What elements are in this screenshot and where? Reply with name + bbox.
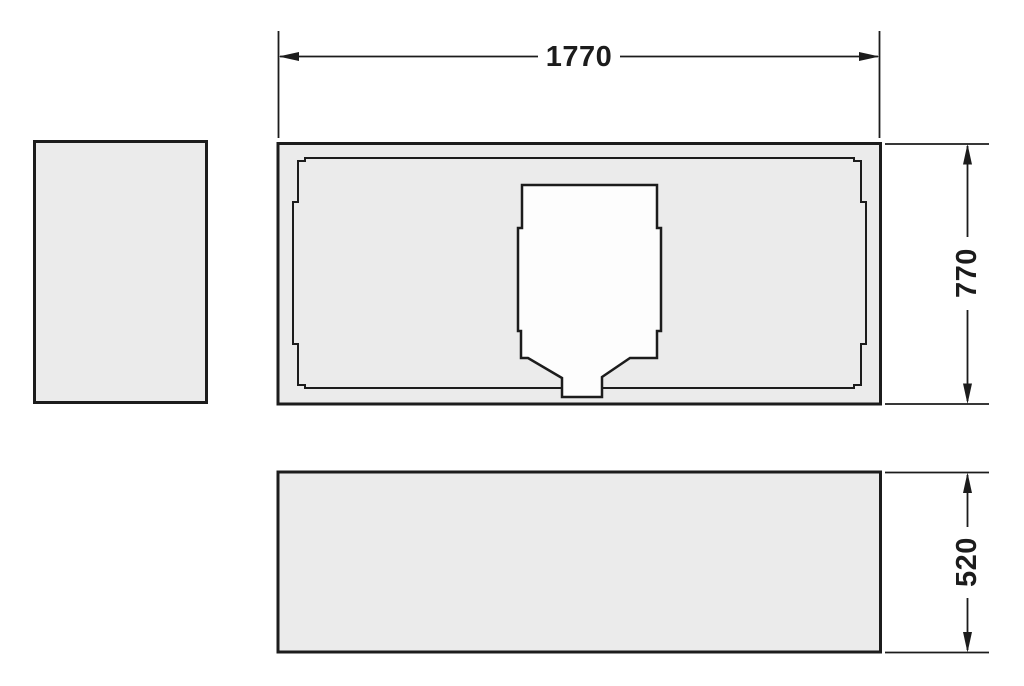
arrowhead-left-icon [279, 52, 300, 61]
width-dimension-label: 1770 [546, 41, 613, 73]
dimension-width: 1770 [279, 31, 880, 138]
side-view-panel [35, 142, 207, 403]
arrowhead-right-icon [859, 52, 880, 61]
side-view [35, 142, 207, 403]
arrowhead-up-icon [963, 144, 972, 165]
arrowhead-down-icon [963, 632, 972, 653]
arrowhead-up-icon [963, 473, 972, 494]
dimension-depth: 770 [885, 144, 989, 404]
technical-drawing: 1770 770 520 [0, 0, 1024, 686]
depth-dimension-label: 770 [951, 248, 983, 298]
drawing-canvas: 1770 770 520 [0, 0, 1024, 686]
plan-view [278, 144, 881, 405]
height-dimension-label: 520 [951, 537, 983, 587]
front-view-panel [278, 472, 881, 652]
dimension-height: 520 [885, 473, 989, 653]
front-view [278, 472, 881, 652]
arrowhead-down-icon [963, 384, 972, 405]
